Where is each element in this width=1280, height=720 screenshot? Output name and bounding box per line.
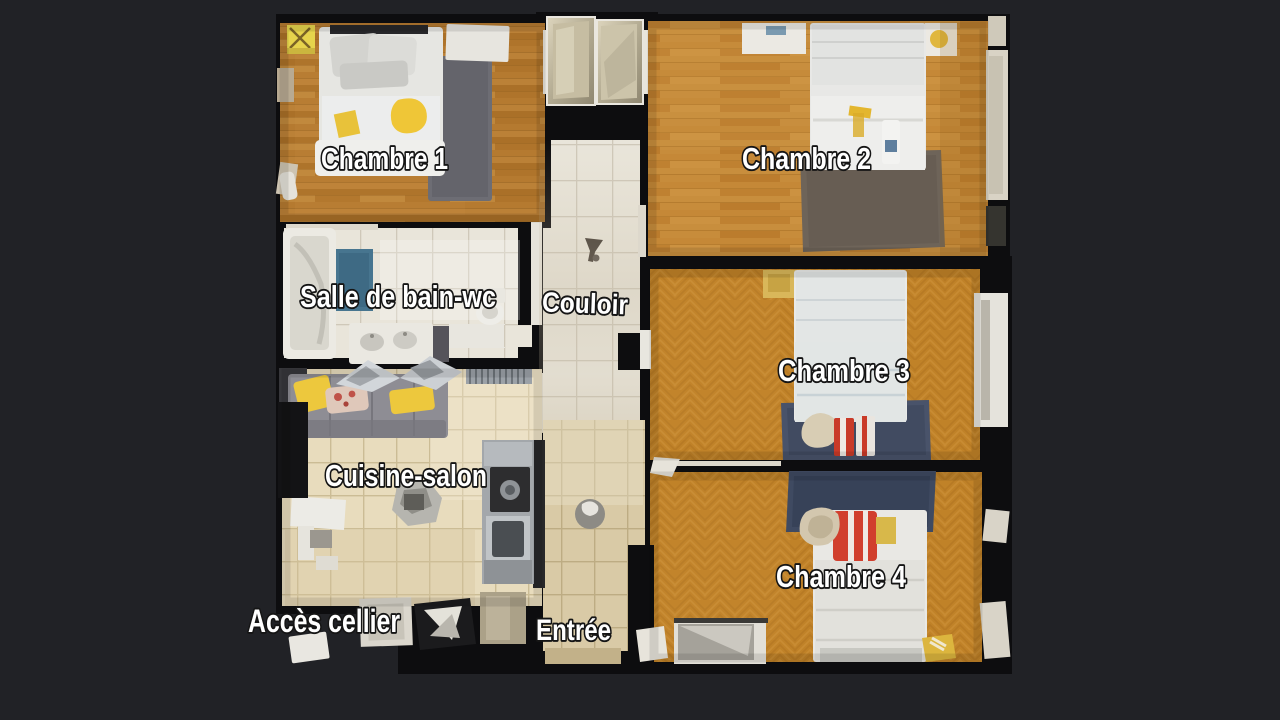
svg-text:Chambre 3: Chambre 3 (778, 353, 910, 388)
svg-text:Accès cellier: Accès cellier (248, 603, 400, 639)
svg-text:Chambre 1: Chambre 1 (321, 141, 448, 176)
svg-text:Chambre 2: Chambre 2 (742, 141, 871, 176)
svg-text:Chambre 4: Chambre 4 (776, 559, 907, 594)
svg-text:Entrée: Entrée (536, 614, 611, 647)
svg-text:Salle de bain-wc: Salle de bain-wc (300, 279, 496, 314)
svg-text:Couloir: Couloir (542, 287, 629, 321)
svg-text:Cuisine-salon: Cuisine-salon (325, 458, 487, 493)
